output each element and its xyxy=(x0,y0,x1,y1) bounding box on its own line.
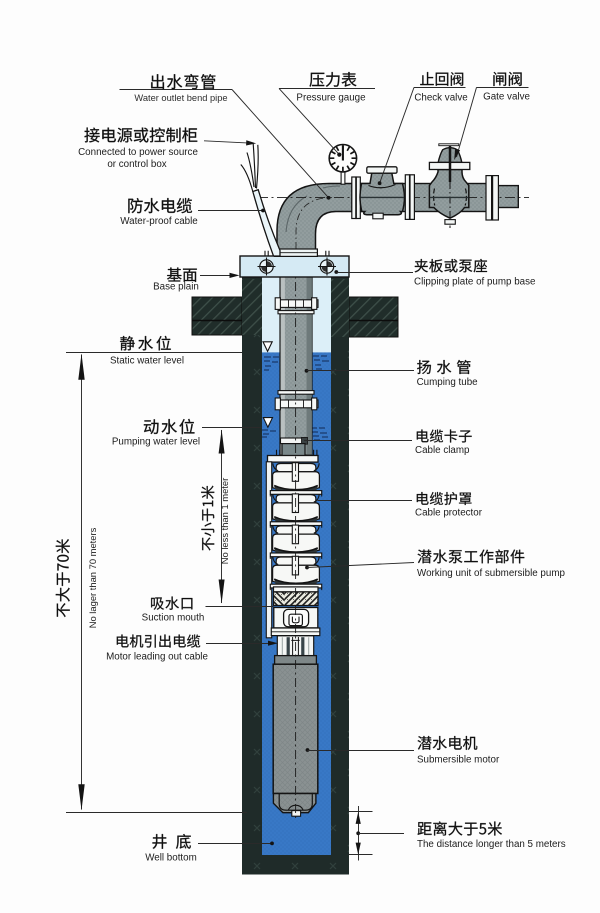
svg-text:No less than 1 meter: No less than 1 meter xyxy=(219,478,230,565)
svg-text:Static water level: Static water level xyxy=(110,355,184,366)
svg-text:Base plain: Base plain xyxy=(153,281,199,292)
svg-text:Check valve: Check valve xyxy=(414,93,468,104)
svg-text:Pumping water level: Pumping water level xyxy=(112,436,200,447)
svg-text:Cable protector: Cable protector xyxy=(415,507,483,518)
svg-text:Gate valve: Gate valve xyxy=(483,92,530,103)
svg-text:Working unit of submersible pu: Working unit of submersible pump xyxy=(417,568,565,579)
svg-text:Cable clamp: Cable clamp xyxy=(415,445,470,456)
svg-text:Clipping plate of pump base: Clipping plate of pump base xyxy=(414,277,536,288)
svg-text:Cumping tube: Cumping tube xyxy=(417,377,479,388)
svg-text:The distance longer than 5 met: The distance longer than 5 meters xyxy=(417,839,566,850)
svg-text:Well bottom: Well bottom xyxy=(145,852,197,863)
svg-text:Water-proof cable: Water-proof cable xyxy=(120,216,198,227)
svg-text:Suction mouth: Suction mouth xyxy=(142,613,205,624)
svg-text:No lager than 70 meters: No lager than 70 meters xyxy=(87,527,98,628)
svg-text:Water outlet bend pipe: Water outlet bend pipe xyxy=(134,93,227,103)
svg-text:Submersible motor: Submersible motor xyxy=(417,754,500,765)
svg-text:or control box: or control box xyxy=(107,159,166,170)
svg-text:Motor leading out cable: Motor leading out cable xyxy=(106,651,208,662)
svg-text:Connected to power source: Connected to power source xyxy=(78,147,198,158)
svg-text:Pressure gauge: Pressure gauge xyxy=(296,92,366,103)
